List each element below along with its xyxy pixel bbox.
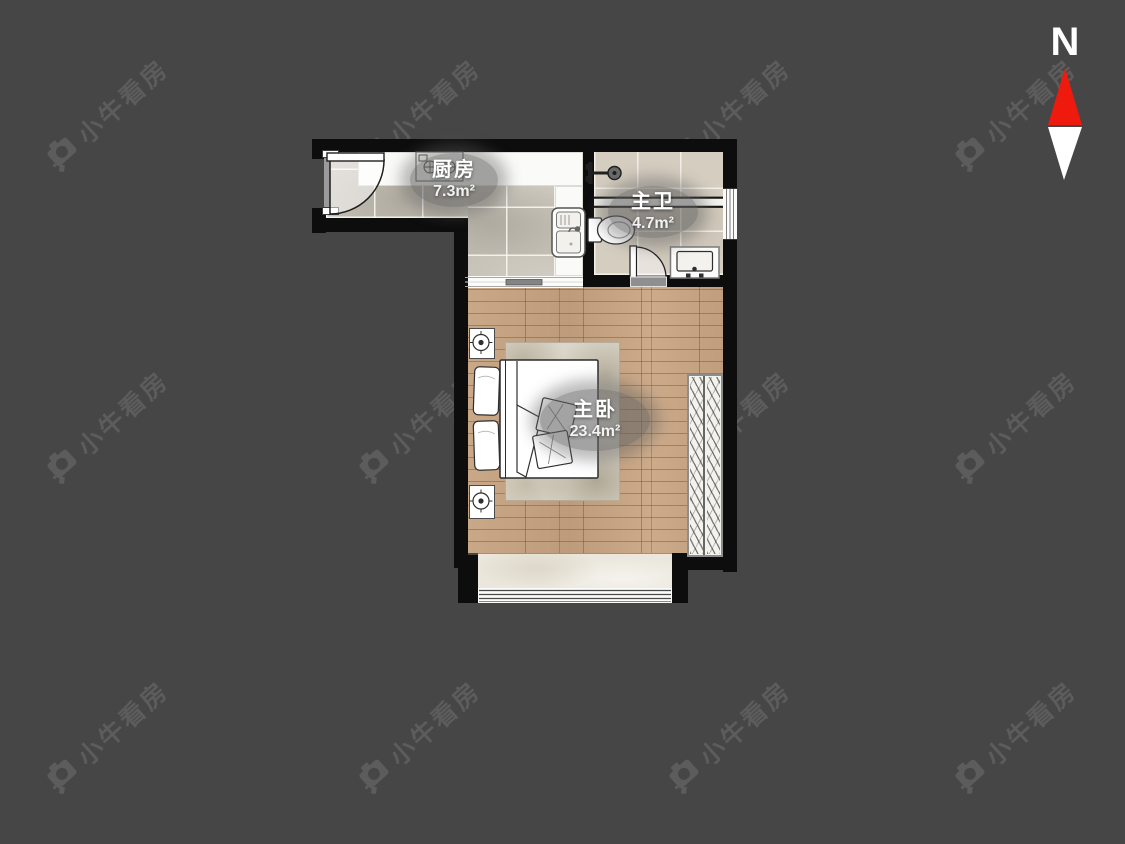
entrance-door bbox=[327, 153, 384, 214]
watermark: 小牛看房 bbox=[944, 359, 1082, 488]
watermark-text: 小牛看房 bbox=[982, 678, 1082, 772]
lamp-icon bbox=[470, 331, 493, 354]
watermark-text: 小牛看房 bbox=[74, 678, 174, 772]
watermark-text: 小牛看房 bbox=[982, 368, 1082, 462]
watermark: 小牛看房 bbox=[944, 669, 1082, 798]
sliding-door-icon bbox=[465, 278, 583, 287]
compass: N bbox=[1025, 18, 1105, 182]
watermark-text: 小牛看房 bbox=[74, 56, 174, 150]
watermark: 小牛看房 bbox=[36, 47, 174, 176]
room-area: 23.4m² bbox=[570, 423, 621, 441]
pillow bbox=[473, 367, 500, 416]
watermark-text: 小牛看房 bbox=[74, 368, 174, 462]
shower-icon bbox=[586, 162, 622, 184]
pillow bbox=[473, 421, 500, 471]
compass-north-label: N bbox=[1051, 18, 1080, 66]
watermark: 小牛看房 bbox=[348, 669, 486, 798]
watermark: 小牛看房 bbox=[36, 359, 174, 488]
lamp-icon bbox=[470, 490, 493, 513]
watermark-text: 小牛看房 bbox=[696, 56, 796, 150]
balcony-window-tracks bbox=[479, 591, 671, 602]
room-label-bathroom: 主卫 4.7m² bbox=[608, 186, 698, 238]
room-area: 4.7m² bbox=[632, 215, 674, 233]
watermark-text: 小牛看房 bbox=[386, 56, 486, 150]
watermark: 小牛看房 bbox=[658, 669, 796, 798]
watermark: 小牛看房 bbox=[36, 669, 174, 798]
watermark-text: 小牛看房 bbox=[696, 678, 796, 772]
floorplan-screenshot: 小牛看房小牛看房小牛看房小牛看房小牛看房小牛看房小牛看房小牛看房小牛看房小牛看房… bbox=[0, 0, 1125, 844]
compass-needle-icon bbox=[1046, 66, 1084, 182]
room-name: 厨房 bbox=[432, 159, 476, 181]
floor-plan: 厨房 7.3m² 主卫 4.7m² 主卧 23.4m² bbox=[312, 138, 737, 603]
room-area: 7.3m² bbox=[433, 183, 475, 201]
room-label-bedroom: 主卧 23.4m² bbox=[540, 389, 650, 451]
room-name: 主卧 bbox=[573, 399, 617, 421]
room-name: 主卫 bbox=[631, 191, 675, 213]
vanity-sink-icon bbox=[671, 247, 720, 278]
room-label-kitchen: 厨房 7.3m² bbox=[410, 153, 498, 207]
watermark-text: 小牛看房 bbox=[386, 678, 486, 772]
bathroom-window-panes bbox=[723, 188, 737, 240]
kitchen-sink-icon bbox=[552, 208, 585, 257]
bathroom-door bbox=[630, 246, 667, 287]
